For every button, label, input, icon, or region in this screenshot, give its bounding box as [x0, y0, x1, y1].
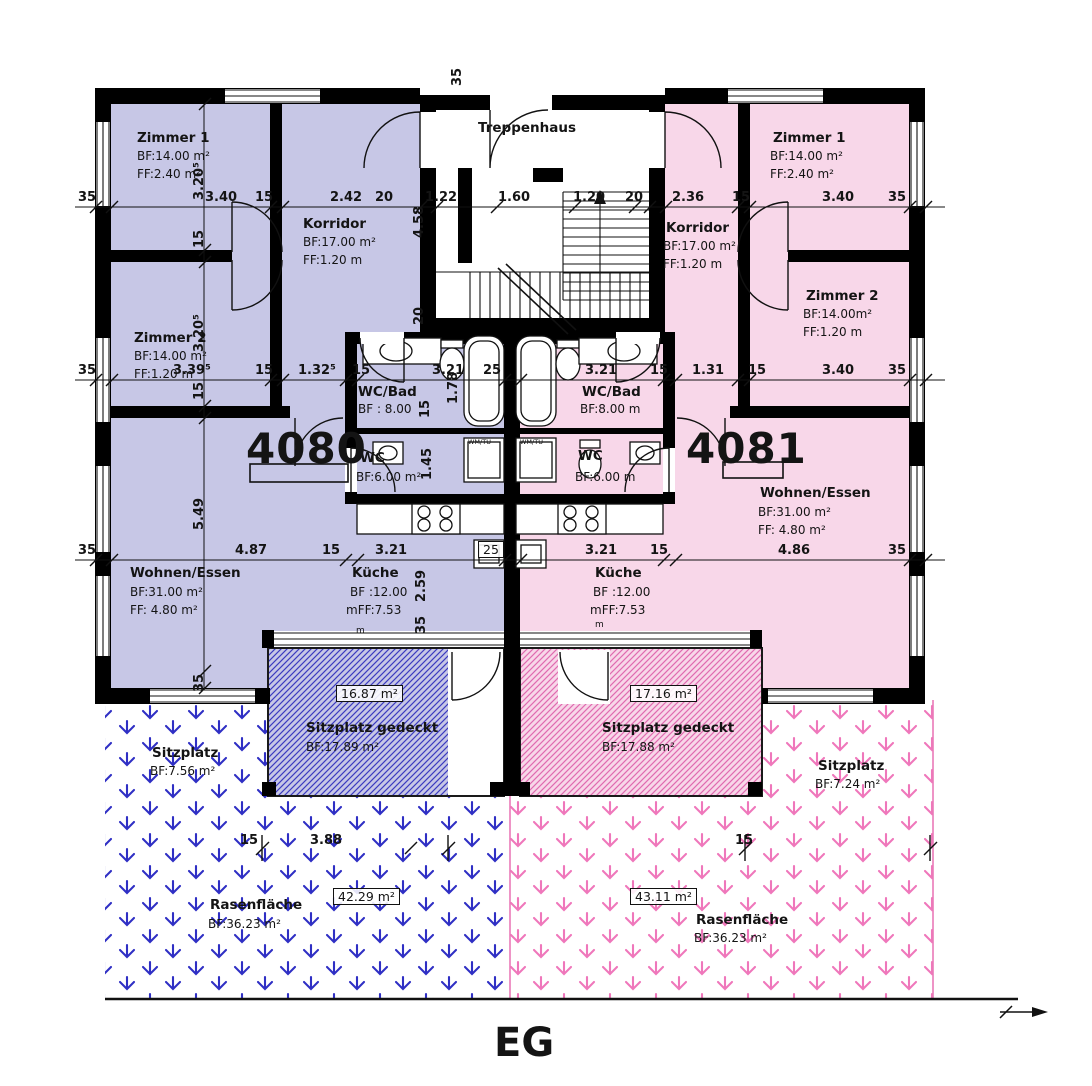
room-area-zimmer2-right-bf: BF:14.00m²	[803, 307, 872, 321]
terrace-area-left: BF:17.89 m²	[306, 740, 379, 754]
apartment-number-right: 4081	[686, 424, 807, 473]
room-area-zimmer1-left-bf: BF:14.00 m²	[137, 149, 210, 163]
room-area-kueche-left-ff: mFF:7.53	[346, 603, 401, 617]
dim-vleft-4: 5.49	[192, 498, 207, 530]
rasen-area-right: BF:36.23 m²	[694, 931, 767, 945]
dim-lower-1: 4.87	[235, 543, 267, 558]
ground-baseline	[105, 999, 1048, 1018]
dim-mid-2: 15	[255, 363, 273, 378]
dim-top-1: 3.40	[205, 190, 237, 205]
room-label-korridor-right: Korridor	[666, 220, 729, 236]
meter-mark-left: m	[356, 626, 365, 636]
dim-lower-8: 35	[888, 543, 906, 558]
sitzplatz-label-left: Sitzplatz	[152, 745, 218, 761]
level-title: EG	[494, 1020, 554, 1066]
dim-vbath-0: 1.78	[446, 372, 461, 404]
room-area-korridor-right-ff: FF:1.20 m	[663, 257, 722, 271]
dim-mid-8: 15	[650, 363, 668, 378]
room-area-wohnen-left-ff: FF: 4.80 m²	[130, 603, 198, 617]
dim-top-7: 1.20	[573, 190, 605, 205]
dim-garden-0: 15	[240, 833, 258, 848]
room-area-zimmer1-right-bf: BF:14.00 m²	[770, 149, 843, 163]
appliance-label-right: WM/TU	[520, 438, 543, 446]
room-area-zimmer1-right-ff: FF:2.40 m²	[770, 167, 834, 181]
room-label-kueche-right: Küche	[595, 565, 642, 581]
dim-lower-4: 25	[478, 541, 504, 558]
dim-vleft-3: 15	[192, 382, 207, 400]
room-area-kueche-left-bf: BF :12.00	[350, 585, 407, 599]
dim-mid-10: 15	[748, 363, 766, 378]
room-area-kueche-right-ff: mFF:7.53	[590, 603, 645, 617]
dim-lower-5: 3.21	[585, 543, 617, 558]
room-area-wohnen-left-bf: BF:31.00 m²	[130, 585, 203, 599]
room-label-zimmer2-right: Zimmer 2	[806, 288, 878, 304]
terrace-label-left: Sitzplatz gedeckt	[306, 720, 438, 736]
room-label-kueche-left: Küche	[352, 565, 399, 581]
dim-mid-1: 3.39⁵	[173, 363, 211, 378]
rasen-label-left: Rasenfläche	[210, 897, 302, 913]
dim-lower-6: 15	[650, 543, 668, 558]
dim-vleft-1: 15	[192, 230, 207, 248]
rasen-boxed-area-left: 42.29 m²	[333, 888, 400, 905]
rasen-area-left: BF:36.23 m²	[208, 917, 281, 931]
dim-vleft-5: 35	[192, 674, 207, 692]
room-label-korridor-left: Korridor	[303, 216, 366, 232]
room-area-kueche-right-bf: BF :12.00	[593, 585, 650, 599]
dim-mid-11: 3.40	[822, 363, 854, 378]
room-area-wcbad-left-bf: BF : 8.00	[358, 402, 412, 416]
room-area-korridor-left-bf: BF:17.00 m²	[303, 235, 376, 249]
dim-top-8: 20	[625, 190, 643, 205]
dim-top-5: 1.22	[425, 190, 457, 205]
sitzplatz-label-right: Sitzplatz	[818, 758, 884, 774]
dim-lower-3: 3.21	[375, 543, 407, 558]
dim-vleft-2: 3.20⁵	[192, 314, 207, 352]
rasen-label-right: Rasenfläche	[696, 912, 788, 928]
room-area-wc-right-bf: BF:6.00 m	[575, 470, 635, 484]
dim-mid-7: 3.21	[585, 363, 617, 378]
terrace-label-right: Sitzplatz gedeckt	[602, 720, 734, 736]
dim-mid-0: 35	[78, 363, 96, 378]
dim-vcenter-2: 20	[412, 307, 427, 325]
dim-top-2: 15	[255, 190, 273, 205]
room-label-wohnen-right: Wohnen/Essen	[760, 485, 871, 501]
room-label-zimmer1-left: Zimmer 1	[137, 130, 209, 146]
dim-garden-1: 3.88	[310, 833, 342, 848]
floor-plan: Zimmer 1 BF:14.00 m² FF:2.40 m² Korridor…	[0, 0, 1092, 1086]
meter-mark-right: m	[595, 620, 604, 630]
room-area-wohnen-right-ff: FF: 4.80 m²	[758, 523, 826, 537]
stairwell-label: Treppenhaus	[478, 120, 576, 136]
dim-top-3: 2.42	[330, 190, 362, 205]
dim-lower-2: 15	[322, 543, 340, 558]
dim-mid-3: 1.32⁵	[298, 363, 336, 378]
apartment-number-left: 4080	[246, 424, 367, 473]
appliance-label-left: WM/TU	[468, 438, 491, 446]
rasen-boxed-area-right: 43.11 m²	[630, 888, 697, 905]
dim-vcenter-1: 4.58	[412, 206, 427, 238]
dim-vbath-2: 1.45	[420, 448, 435, 480]
dim-top-10: 15	[732, 190, 750, 205]
dim-mid-9: 1.31	[692, 363, 724, 378]
dim-lower-0: 35	[78, 543, 96, 558]
room-label-wcbad-left: WC/Bad	[358, 384, 417, 400]
room-area-wohnen-right-bf: BF:31.00 m²	[758, 505, 831, 519]
dim-top-6: 1.60	[498, 190, 530, 205]
dim-top-0: 35	[78, 190, 96, 205]
room-area-zimmer2-right-ff: FF:1.20 m	[803, 325, 862, 339]
room-area-korridor-right-bf: BF:17.00 m²	[663, 239, 736, 253]
dim-top-12: 35	[888, 190, 906, 205]
dim-lower-7: 4.86	[778, 543, 810, 558]
dim-top-11: 3.40	[822, 190, 854, 205]
dim-top-4: 20	[375, 190, 393, 205]
dim-vleft-0: 3.20⁵	[192, 162, 207, 200]
room-label-wcbad-right: WC/Bad	[582, 384, 641, 400]
sitzplatz-area-right: BF:7.24 m²	[815, 777, 880, 791]
dim-top-9: 2.36	[672, 190, 704, 205]
dim-mid-6: 25	[483, 363, 501, 378]
room-area-korridor-left-ff: FF:1.20 m	[303, 253, 362, 267]
dim-garden-2: 15	[735, 833, 753, 848]
dim-mid-12: 35	[888, 363, 906, 378]
dim-vcenter-0: 35	[450, 68, 465, 86]
terrace-area-right: BF:17.88 m²	[602, 740, 675, 754]
dim-vkueche-1: 35	[414, 616, 429, 634]
room-label-wc-right: WC	[578, 448, 603, 464]
dim-vbath-1: 15	[418, 400, 433, 418]
dim-mid-4: 15	[352, 363, 370, 378]
room-label-zimmer1-right: Zimmer 1	[773, 130, 845, 146]
sitzplatz-area-left: BF:7.56 m²	[150, 764, 215, 778]
terrace-boxed-area-left: 16.87 m²	[336, 685, 403, 702]
dim-vkueche-0: 2.59	[414, 570, 429, 602]
terrace-boxed-area-right: 17.16 m²	[630, 685, 697, 702]
room-area-wcbad-right-bf: BF:8.00 m	[580, 402, 640, 416]
room-label-wohnen-left: Wohnen/Essen	[130, 565, 241, 581]
